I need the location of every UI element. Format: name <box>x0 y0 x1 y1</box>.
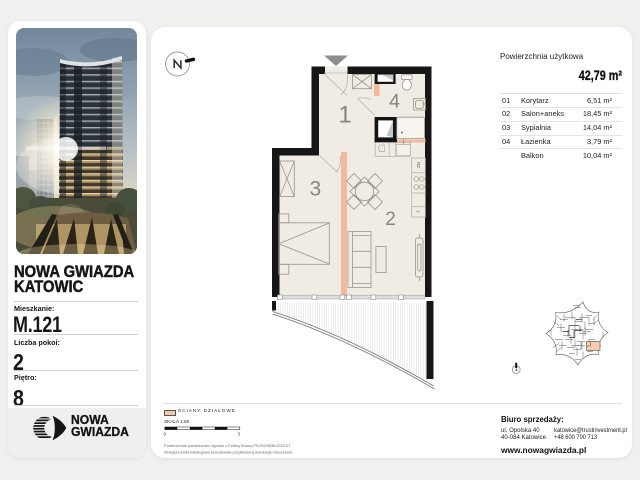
svg-text:3: 3 <box>309 178 321 201</box>
svg-text:1: 1 <box>338 102 351 129</box>
svg-text:3: 3 <box>238 432 241 437</box>
svg-text:0: 0 <box>164 432 167 437</box>
svg-text:4: 4 <box>389 91 400 113</box>
svg-text:RZ: RZ <box>416 162 421 168</box>
svg-text:2: 2 <box>385 209 396 230</box>
